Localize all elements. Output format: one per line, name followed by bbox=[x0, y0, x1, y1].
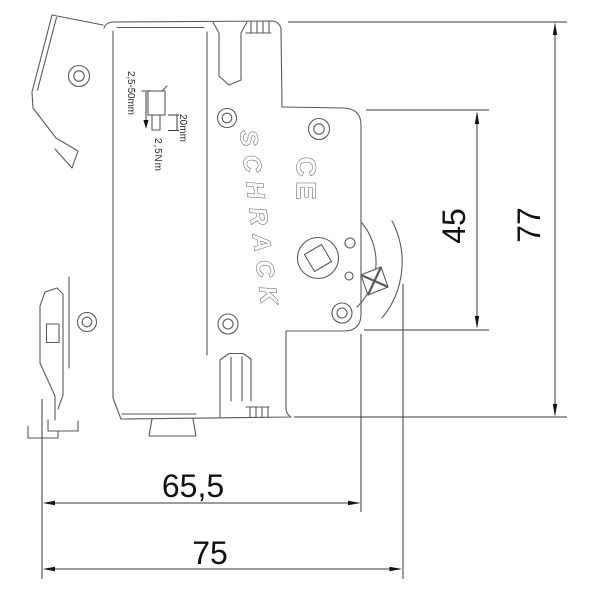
arrowhead-up bbox=[553, 23, 557, 36]
device-dimension-drawing: 2,5-50mm 20mm 2,5Nm SCHRACK CE 77 45 65,… bbox=[0, 0, 600, 600]
latch-cap bbox=[40, 288, 63, 306]
arrowhead-left bbox=[43, 501, 55, 505]
bare-wire-icon bbox=[152, 115, 160, 130]
ce-mark: CE bbox=[291, 157, 321, 205]
arrowhead-right bbox=[390, 567, 403, 571]
top-terminal-slot bbox=[213, 22, 247, 85]
bottom-foot-mid bbox=[149, 419, 196, 436]
clip-screw-center bbox=[74, 71, 84, 81]
insert-depth-arrowhead bbox=[144, 120, 149, 129]
rotary-drive bbox=[298, 221, 403, 318]
bottom-foot-left bbox=[28, 420, 78, 438]
drive-shaft-circle bbox=[298, 238, 339, 279]
clip-inner-edge bbox=[38, 18, 57, 91]
strip-length-label: 20mm bbox=[177, 114, 188, 142]
front-face-and-bottom bbox=[113, 31, 361, 419]
clip-outer-edge bbox=[32, 15, 78, 168]
face-screw-top-center bbox=[314, 124, 324, 134]
body-screw-top-center bbox=[222, 113, 232, 123]
dimension-face-height: 45 bbox=[364, 110, 489, 330]
dimension-total-height: 77 bbox=[288, 22, 567, 417]
drive-square bbox=[305, 245, 332, 272]
latch-screw-center bbox=[82, 317, 92, 327]
handle-arc-inner bbox=[357, 223, 376, 307]
arrowhead-down bbox=[475, 316, 479, 329]
body-screw-bottom-center bbox=[223, 319, 233, 329]
din-rail-clip bbox=[32, 15, 103, 420]
index-hole-bottom bbox=[345, 272, 353, 280]
wire-ferrule-icon bbox=[148, 91, 165, 115]
dim-value-depth-to-face: 65,5 bbox=[162, 468, 224, 504]
arrowhead-up bbox=[475, 112, 479, 125]
dimension-total-depth: 75 bbox=[43, 284, 403, 579]
latch-screw bbox=[78, 313, 97, 332]
arrowhead-down bbox=[553, 404, 557, 417]
index-hole-top bbox=[345, 238, 355, 248]
wire-tip-line bbox=[162, 86, 167, 91]
dim-value-total-height: 77 bbox=[511, 207, 547, 243]
terminal-torque-pictogram: 2,5-50mm 20mm 2,5Nm bbox=[125, 71, 188, 171]
top-terminal-comb bbox=[246, 22, 271, 34]
handle-arc-outer bbox=[382, 221, 402, 318]
latch-slot bbox=[47, 324, 60, 343]
clip-screw bbox=[69, 66, 90, 87]
brand-logo: SCHRACK bbox=[234, 128, 282, 307]
dim-value-total-depth: 75 bbox=[192, 535, 228, 571]
body-screw-bottom bbox=[218, 314, 238, 334]
face-screw-top bbox=[309, 119, 330, 140]
face-screw-bottom-center bbox=[337, 308, 347, 318]
arrowhead-left bbox=[43, 567, 55, 571]
face-screw-bottom bbox=[332, 303, 352, 323]
arrowhead-right bbox=[348, 501, 361, 505]
technical-drawing-page: 2,5-50mm 20mm 2,5Nm SCHRACK CE 77 45 65,… bbox=[0, 0, 600, 600]
wire-range-label: 2,5-50mm bbox=[125, 71, 136, 115]
dim-value-face-height: 45 bbox=[436, 208, 472, 244]
torque-label: 2,5Nm bbox=[152, 138, 163, 171]
bottom-terminal-comb bbox=[246, 407, 269, 418]
latch-lower bbox=[40, 363, 63, 420]
body-screw-top bbox=[218, 109, 237, 128]
device-side-profile bbox=[28, 21, 361, 438]
clip-top-slant bbox=[52, 15, 103, 25]
